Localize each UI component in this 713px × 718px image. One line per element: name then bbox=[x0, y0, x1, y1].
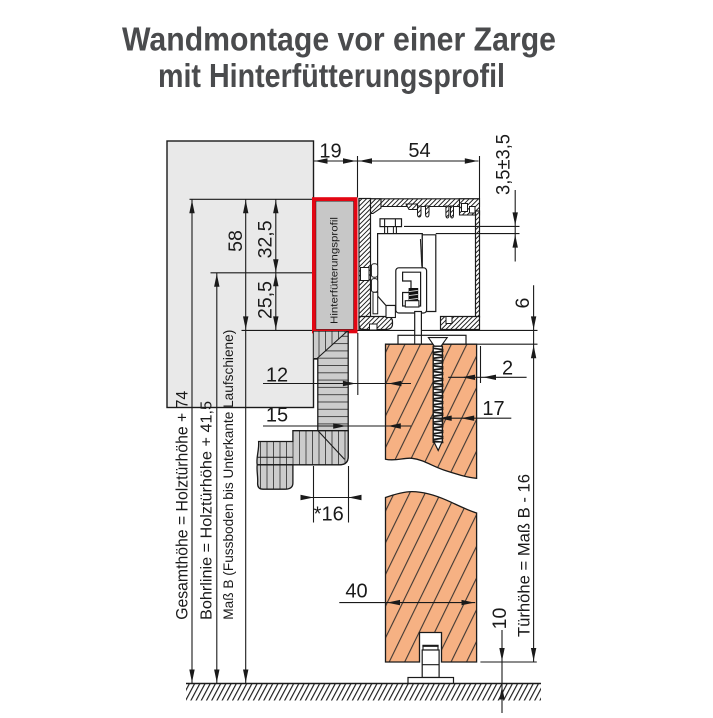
svg-text:Bohrlinie = Holztürhöhe + 41,5: Bohrlinie = Holztürhöhe + 41,5 bbox=[199, 401, 216, 620]
svg-text:32,5: 32,5 bbox=[255, 220, 277, 258]
svg-text:40: 40 bbox=[345, 581, 367, 603]
svg-text:*16: *16 bbox=[314, 504, 344, 526]
svg-text:3,5±3,5: 3,5±3,5 bbox=[493, 134, 515, 195]
svg-text:12: 12 bbox=[266, 365, 288, 387]
svg-text:19: 19 bbox=[319, 141, 341, 163]
svg-text:6: 6 bbox=[512, 298, 534, 309]
svg-text:15: 15 bbox=[266, 405, 288, 427]
svg-text:Türhöhe = Maß B - 16: Türhöhe = Maß B - 16 bbox=[516, 474, 534, 637]
svg-text:25,5: 25,5 bbox=[255, 281, 277, 319]
svg-text:Maß B (Fussboden bis Unterkant: Maß B (Fussboden bis Unterkante Laufschi… bbox=[220, 330, 236, 620]
svg-text:10: 10 bbox=[489, 608, 511, 630]
svg-text:mit Hinterfütterungsprofil: mit Hinterfütterungsprofil bbox=[158, 57, 505, 94]
svg-text:Hinterfütterungsprofil: Hinterfütterungsprofil bbox=[330, 217, 341, 324]
svg-text:54: 54 bbox=[408, 140, 430, 162]
svg-text:Wandmontage vor einer Zarge: Wandmontage vor einer Zarge bbox=[122, 21, 556, 58]
svg-text:2: 2 bbox=[502, 358, 513, 380]
svg-text:Gesamthöhe = Holztürhöhe + 74: Gesamthöhe = Holztürhöhe + 74 bbox=[174, 391, 192, 620]
svg-text:58: 58 bbox=[225, 230, 247, 252]
svg-text:17: 17 bbox=[482, 398, 504, 420]
